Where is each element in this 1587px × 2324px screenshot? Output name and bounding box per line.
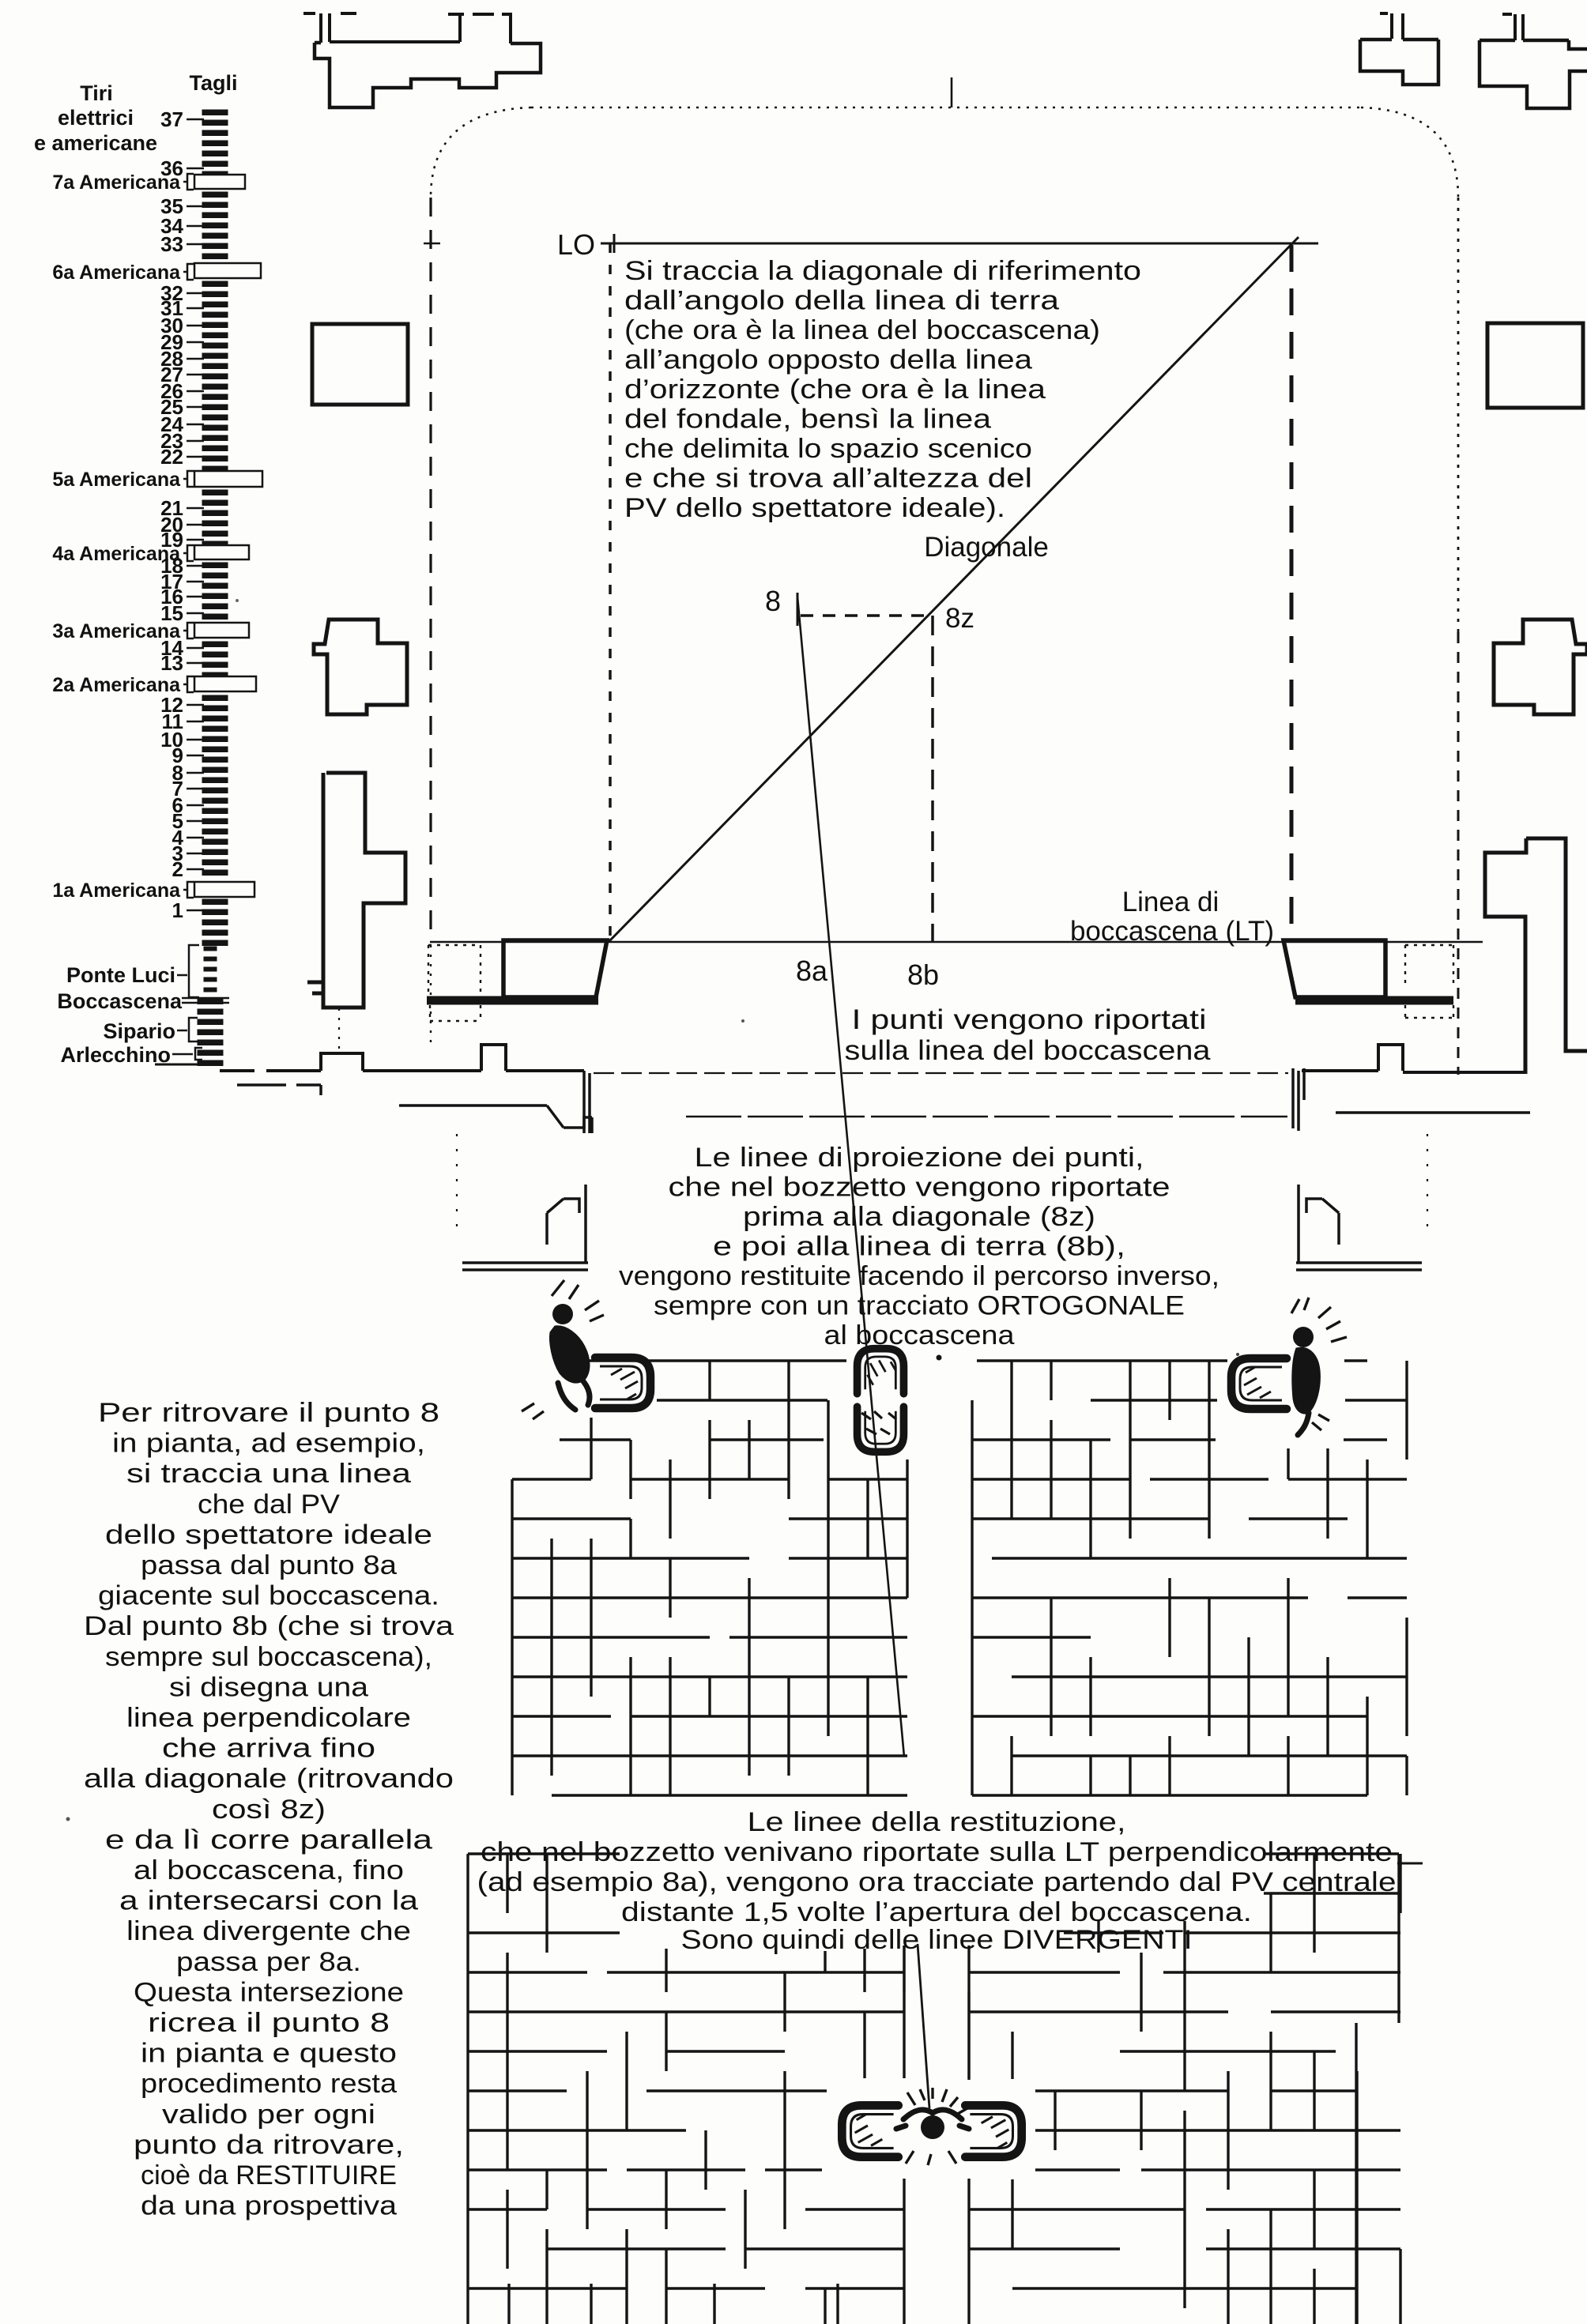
svg-text:LO: LO — [557, 228, 595, 261]
svg-text:I punti vengono riportati: I punti vengono riportati — [852, 1004, 1207, 1035]
svg-text:al boccascena: al boccascena — [824, 1320, 1015, 1350]
svg-text:ricrea il punto 8: ricrea il punto 8 — [148, 2008, 390, 2038]
svg-text:13: 13 — [160, 651, 183, 675]
svg-text:1: 1 — [172, 898, 183, 922]
svg-text:giacente sul boccascena.: giacente sul boccascena. — [98, 1581, 439, 1611]
svg-text:Le linee di proiezione dei pun: Le linee di proiezione dei punti, — [695, 1143, 1144, 1173]
svg-text:PV dello spettatore ideale).: PV dello spettatore ideale). — [624, 493, 1005, 523]
svg-text:all’angolo opposto della linea: all’angolo opposto della linea — [624, 345, 1032, 375]
svg-text:5a Americana: 5a Americana — [52, 469, 181, 491]
svg-text:che nel bozzetto venivano ripo: che nel bozzetto venivano riportate sull… — [481, 1837, 1393, 1867]
svg-text:che dal PV: che dal PV — [198, 1490, 340, 1520]
svg-text:Sono quindi delle linee DIVERG: Sono quindi delle linee DIVERGENTI — [681, 1925, 1193, 1955]
svg-text:Boccascena: Boccascena — [57, 989, 183, 1013]
svg-text:e americane: e americane — [34, 131, 157, 155]
svg-text:Tiri: Tiri — [80, 81, 113, 105]
svg-text:linea divergente che: linea divergente che — [126, 1916, 411, 1946]
svg-text:Le linee della restituzione,: Le linee della restituzione, — [748, 1807, 1126, 1837]
svg-text:sulla linea del boccascena: sulla linea del boccascena — [845, 1035, 1212, 1066]
svg-text:procedimento resta: procedimento resta — [141, 2069, 397, 2099]
svg-text:8: 8 — [765, 585, 781, 617]
svg-text:passa per 8a.: passa per 8a. — [176, 1947, 361, 1977]
svg-text:a intersecarsi con la: a intersecarsi con la — [119, 1886, 418, 1916]
svg-text:Diagonale: Diagonale — [924, 532, 1049, 563]
svg-text:Si traccia la diagonale di rif: Si traccia la diagonale di riferimento — [624, 256, 1141, 286]
svg-text:Per ritrovare il punto 8: Per ritrovare il punto 8 — [98, 1398, 439, 1428]
svg-text:in pianta, ad esempio,: in pianta, ad esempio, — [112, 1429, 425, 1459]
svg-text:33: 33 — [160, 232, 183, 256]
svg-text:prima alla diagonale (8z): prima alla diagonale (8z) — [743, 1202, 1095, 1232]
svg-text:che delimita lo spazio scenico: che delimita lo spazio scenico — [624, 434, 1032, 464]
svg-text:valido per ogni: valido per ogni — [162, 2100, 375, 2130]
svg-text:8b: 8b — [907, 959, 939, 991]
svg-text:in pianta e questo: in pianta e questo — [141, 2039, 397, 2069]
svg-text:boccascena (LT): boccascena (LT) — [1070, 916, 1274, 947]
svg-text:15: 15 — [160, 601, 183, 625]
svg-text:19: 19 — [160, 528, 183, 552]
svg-text:d’orizzonte (che ora è la line: d’orizzonte (che ora è la linea — [624, 375, 1046, 405]
svg-text:Arlecchino: Arlecchino — [60, 1043, 171, 1067]
svg-text:8a: 8a — [796, 955, 828, 987]
svg-text:36: 36 — [160, 156, 183, 180]
svg-text:dall’angolo della linea di ter: dall’angolo della linea di terra — [624, 286, 1059, 316]
svg-text:(ad esempio 8a), vengono ora t: (ad esempio 8a), vengono ora tracciate p… — [477, 1867, 1397, 1897]
svg-text:Sipario: Sipario — [103, 1019, 175, 1043]
svg-text:del fondale, bensì la linea: del fondale, bensì la linea — [624, 405, 991, 435]
svg-text:8z: 8z — [945, 603, 974, 634]
svg-text:passa dal punto 8a: passa dal punto 8a — [141, 1550, 397, 1580]
svg-text:Ponte Luci: Ponte Luci — [66, 963, 175, 987]
svg-text:elettrici: elettrici — [58, 106, 134, 130]
svg-text:dello spettatore ideale: dello spettatore ideale — [105, 1520, 432, 1550]
svg-text:cioè da RESTITUIRE: cioè da RESTITUIRE — [141, 2160, 397, 2190]
svg-text:Questa intersezione: Questa intersezione — [134, 1977, 404, 2007]
svg-text:alla diagonale (ritrovando: alla diagonale (ritrovando — [84, 1764, 454, 1794]
svg-text:Dal punto 8b (che si trova: Dal punto 8b (che si trova — [84, 1611, 454, 1641]
svg-text:che arriva fino: che arriva fino — [162, 1734, 375, 1764]
svg-text:37: 37 — [160, 107, 183, 131]
svg-text:sempre con un tracciato ORTOGO: sempre con un tracciato ORTOGONALE — [654, 1291, 1185, 1321]
svg-text:si traccia una linea: si traccia una linea — [126, 1459, 411, 1489]
svg-text:e poi alla linea di terra (8b): e poi alla linea di terra (8b), — [713, 1232, 1125, 1262]
svg-text:punto da ritrovare,: punto da ritrovare, — [134, 2130, 404, 2160]
svg-text:distante 1,5 volte l’apertura: distante 1,5 volte l’apertura del boccas… — [621, 1897, 1252, 1927]
svg-text:e che si trova all’altezza del: e che si trova all’altezza del — [624, 464, 1032, 494]
svg-text:2: 2 — [172, 857, 183, 881]
svg-text:al boccascena, fino: al boccascena, fino — [134, 1855, 404, 1885]
svg-text:Linea di: Linea di — [1122, 887, 1219, 917]
svg-text:22: 22 — [160, 445, 183, 469]
svg-text:1a Americana: 1a Americana — [52, 880, 181, 902]
svg-text:così 8z): così 8z) — [212, 1795, 326, 1825]
svg-text:si disegna una: si disegna una — [169, 1672, 368, 1702]
svg-text:6a Americana: 6a Americana — [52, 262, 181, 284]
svg-text:e da lì corre parallela: e da lì corre parallela — [105, 1825, 432, 1855]
svg-text:(che ora è la linea del boccas: (che ora è la linea del boccascena) — [624, 315, 1100, 345]
svg-text:sempre sul boccascena),: sempre sul boccascena), — [105, 1642, 432, 1672]
svg-text:Tagli: Tagli — [189, 71, 237, 95]
svg-text:da una prospettiva: da una prospettiva — [141, 2191, 397, 2221]
svg-text:che nel bozzetto vengono ripor: che nel bozzetto vengono riportate — [669, 1173, 1170, 1203]
svg-text:vengono restituite facendo il: vengono restituite facendo il percorso i… — [619, 1261, 1219, 1291]
svg-text:linea perpendicolare: linea perpendicolare — [126, 1703, 411, 1733]
